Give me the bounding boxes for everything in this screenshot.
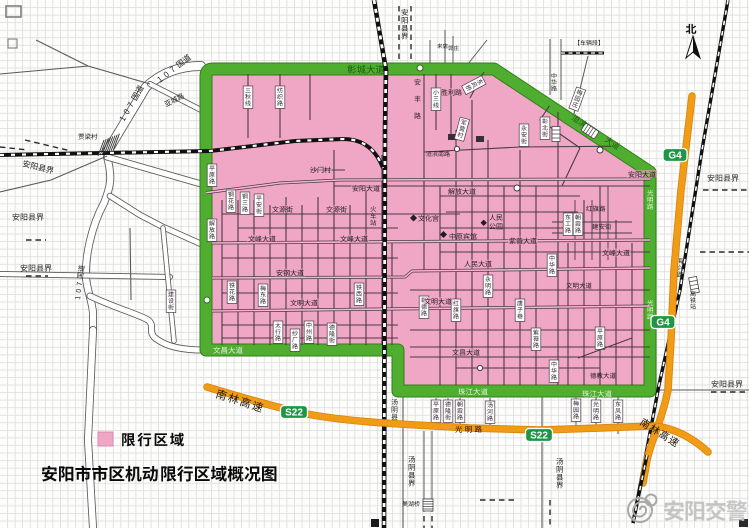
svg-text:S22: S22 — [285, 408, 303, 419]
svg-text:G4: G4 — [668, 151, 682, 162]
svg-text:S22: S22 — [530, 431, 548, 442]
svg-text:G4: G4 — [656, 318, 670, 329]
